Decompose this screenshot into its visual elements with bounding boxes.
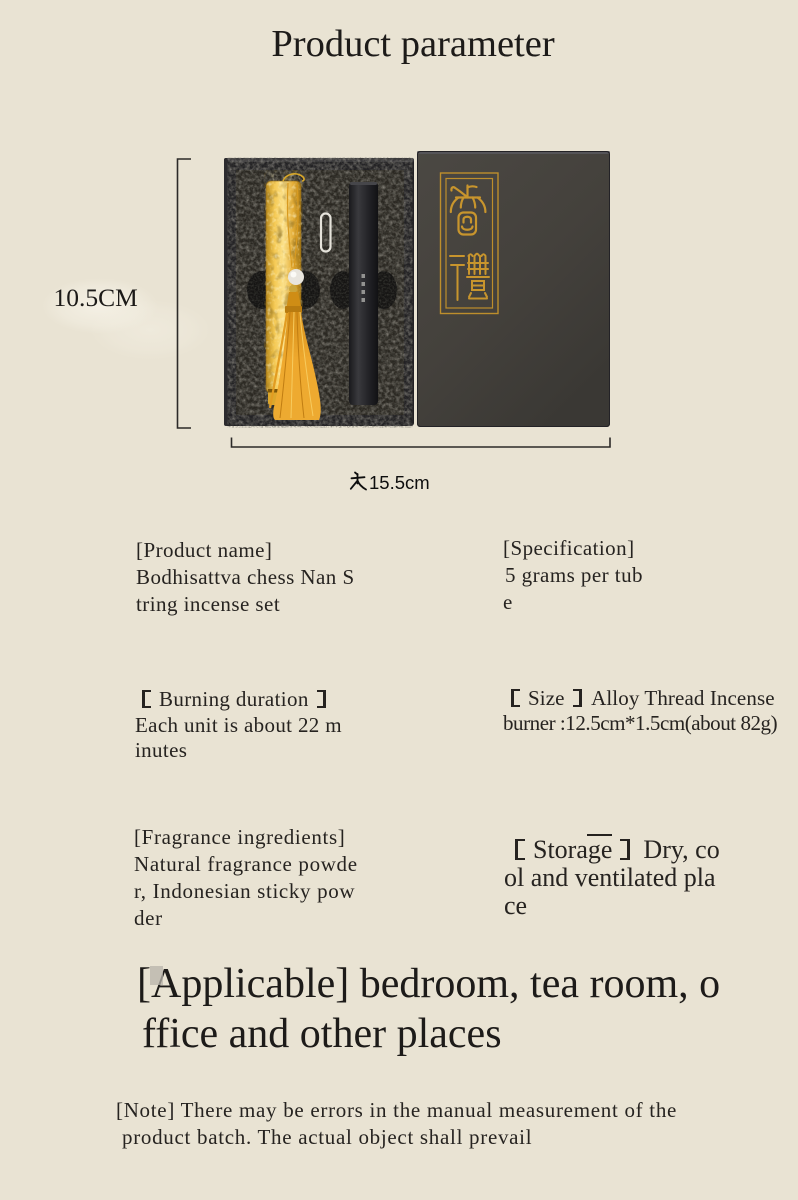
svg-text:10.5CM: 10.5CM [54,283,138,312]
svg-text:15.5cm: 15.5cm [369,472,430,493]
